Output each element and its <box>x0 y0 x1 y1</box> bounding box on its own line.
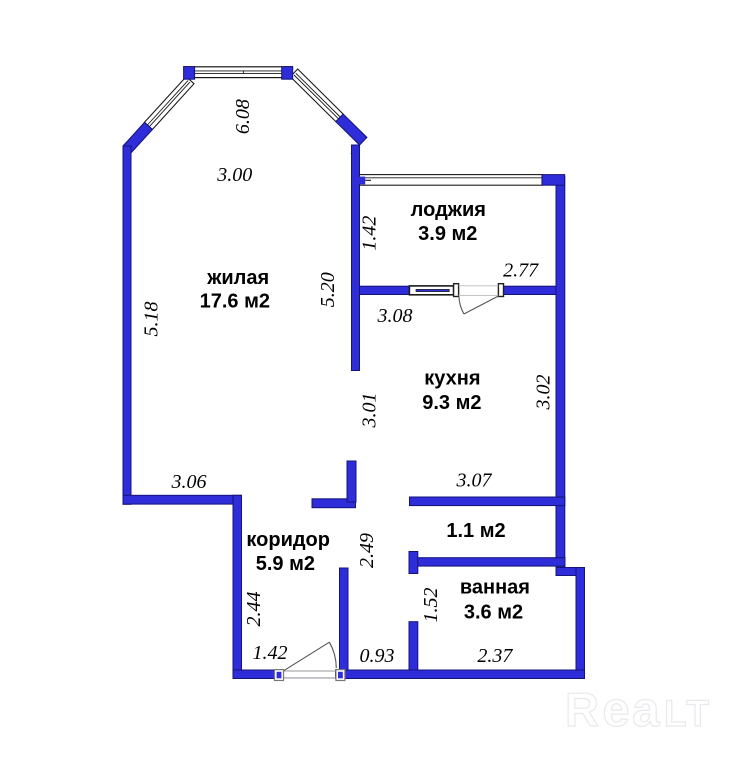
svg-text:2.37: 2.37 <box>477 645 513 667</box>
svg-text:6.08: 6.08 <box>232 99 254 134</box>
svg-text:5.20: 5.20 <box>317 272 339 307</box>
svg-text:5.9 м2: 5.9 м2 <box>256 553 315 575</box>
svg-text:жилая: жилая <box>206 267 269 289</box>
svg-text:3.02: 3.02 <box>533 375 555 411</box>
svg-text:лоджия: лоджия <box>411 199 486 221</box>
svg-text:5.18: 5.18 <box>141 302 163 337</box>
svg-text:1.1 м2: 1.1 м2 <box>446 520 505 542</box>
svg-text:1.42: 1.42 <box>359 216 381 251</box>
svg-text:3.00: 3.00 <box>216 164 252 186</box>
svg-text:3.6 м2: 3.6 м2 <box>464 602 523 624</box>
svg-text:кухня: кухня <box>424 368 480 390</box>
svg-text:3.06: 3.06 <box>171 471 207 493</box>
svg-text:1.42: 1.42 <box>253 642 288 664</box>
svg-text:2.44: 2.44 <box>243 592 265 627</box>
svg-text:1.52: 1.52 <box>420 588 442 623</box>
svg-text:3.07: 3.07 <box>456 470 493 492</box>
svg-text:3.08: 3.08 <box>377 305 413 327</box>
svg-text:коридор: коридор <box>246 529 330 551</box>
svg-text:2.49: 2.49 <box>356 533 378 568</box>
svg-text:17.6 м2: 17.6 м2 <box>200 291 270 313</box>
svg-text:ванная: ванная <box>460 577 530 599</box>
svg-text:0.93: 0.93 <box>360 645 395 667</box>
svg-text:3.01: 3.01 <box>359 393 381 429</box>
svg-text:9.3 м2: 9.3 м2 <box>422 392 481 414</box>
svg-text:2.77: 2.77 <box>503 259 539 281</box>
svg-text:3.9 м2: 3.9 м2 <box>418 223 477 245</box>
